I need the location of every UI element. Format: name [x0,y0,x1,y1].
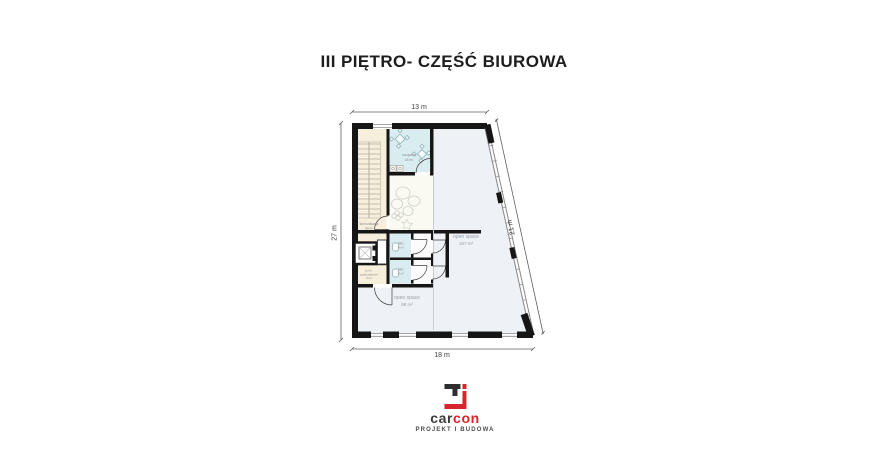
room-area-wc-upper: 4 m² [398,246,404,250]
room-label-open-space-lower: open space [394,295,420,301]
logo-wordmark: carcon [430,411,480,425]
dimension-label-left: 27 m [332,225,339,241]
logo-text-car: car [430,410,453,426]
room-area-open-space-lower: 98 m² [401,302,413,307]
carcon-logo: carcon PROJEKT I BUDOWA [415,384,494,433]
room-label-socjalna: socjalna [402,153,415,157]
page-title: III PIĘTRO- CZĘŚĆ BIUROWA [0,52,888,72]
room-label-open-space-main: open space [453,234,479,240]
logo-tagline: PROJEKT I BUDOWA [415,427,494,433]
dimension-label-top: 13 m [411,104,427,111]
dimension-label-bottom: 18 m [434,352,450,359]
room-area-socjalna: 18 m² [405,158,415,162]
logo-text-con: con [453,410,480,426]
room-area-gospodarcze: 3 m² [366,276,372,280]
shaft-room [378,240,387,264]
room-area-open-space-main: 187 m² [459,241,474,246]
elevator-icon [355,243,377,265]
room-area-komunikacja: 30 m² [365,226,373,230]
floor-plan: socjalna 18 m² komunikacja 30 m² WC 4 m²… [330,95,610,365]
carcon-logo-icon [443,384,467,409]
room-area-wc-lower: 4 m² [398,272,404,276]
